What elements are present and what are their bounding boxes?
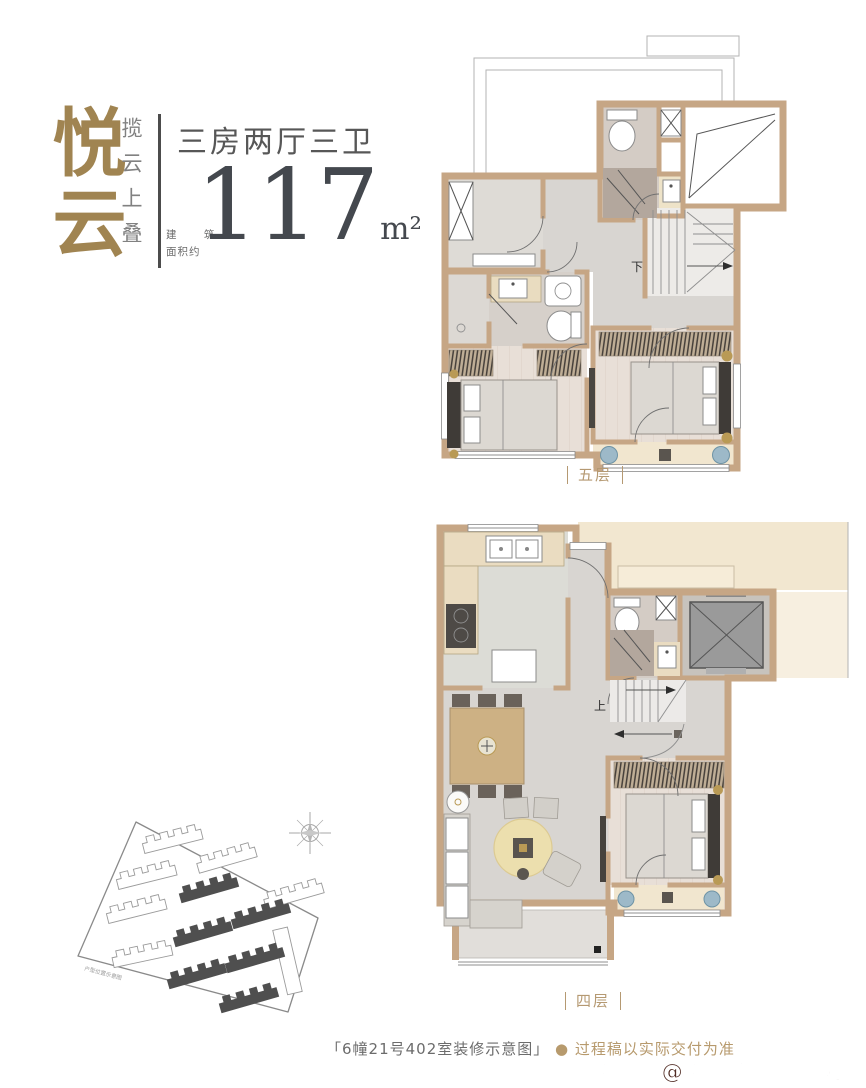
floor-plan-upper: 下 [437, 28, 857, 473]
elevator [680, 590, 773, 678]
compass-icon [289, 812, 331, 854]
floor-label-lower-text: 四层 [565, 992, 621, 1010]
floor-plan-lower: 上 [428, 518, 853, 978]
floor-label-upper-text: 五层 [567, 466, 623, 484]
area-number: 117 [196, 160, 377, 253]
dining-set [450, 694, 524, 798]
brand-tagline: 揽云上叠 [120, 117, 141, 257]
bedroom-lower [614, 758, 724, 885]
brand-title: 悦云 [46, 104, 120, 264]
area-unit: m² [380, 214, 422, 253]
area-value: 117 m² [196, 160, 422, 253]
stair-up-label: 上 [594, 699, 606, 713]
site-plan: 户型位置示意图 [58, 798, 338, 1028]
page: 悦云 揽云上叠 三房两厅三卫 建 筑 面积约 117 m² [0, 0, 866, 1088]
watermark: 搜狐号@搜狐焦点嘉峪关站 [594, 1055, 864, 1086]
caption-bullet-icon: ● [555, 1040, 569, 1058]
floor-label-upper: 五层 [550, 464, 640, 485]
floor-label-lower: 四层 [548, 990, 638, 1011]
stair-down-label: 下 [631, 260, 643, 274]
header-divider [158, 114, 161, 268]
caption-title: 「6幢21号402室装修示意图」 [326, 1040, 549, 1058]
